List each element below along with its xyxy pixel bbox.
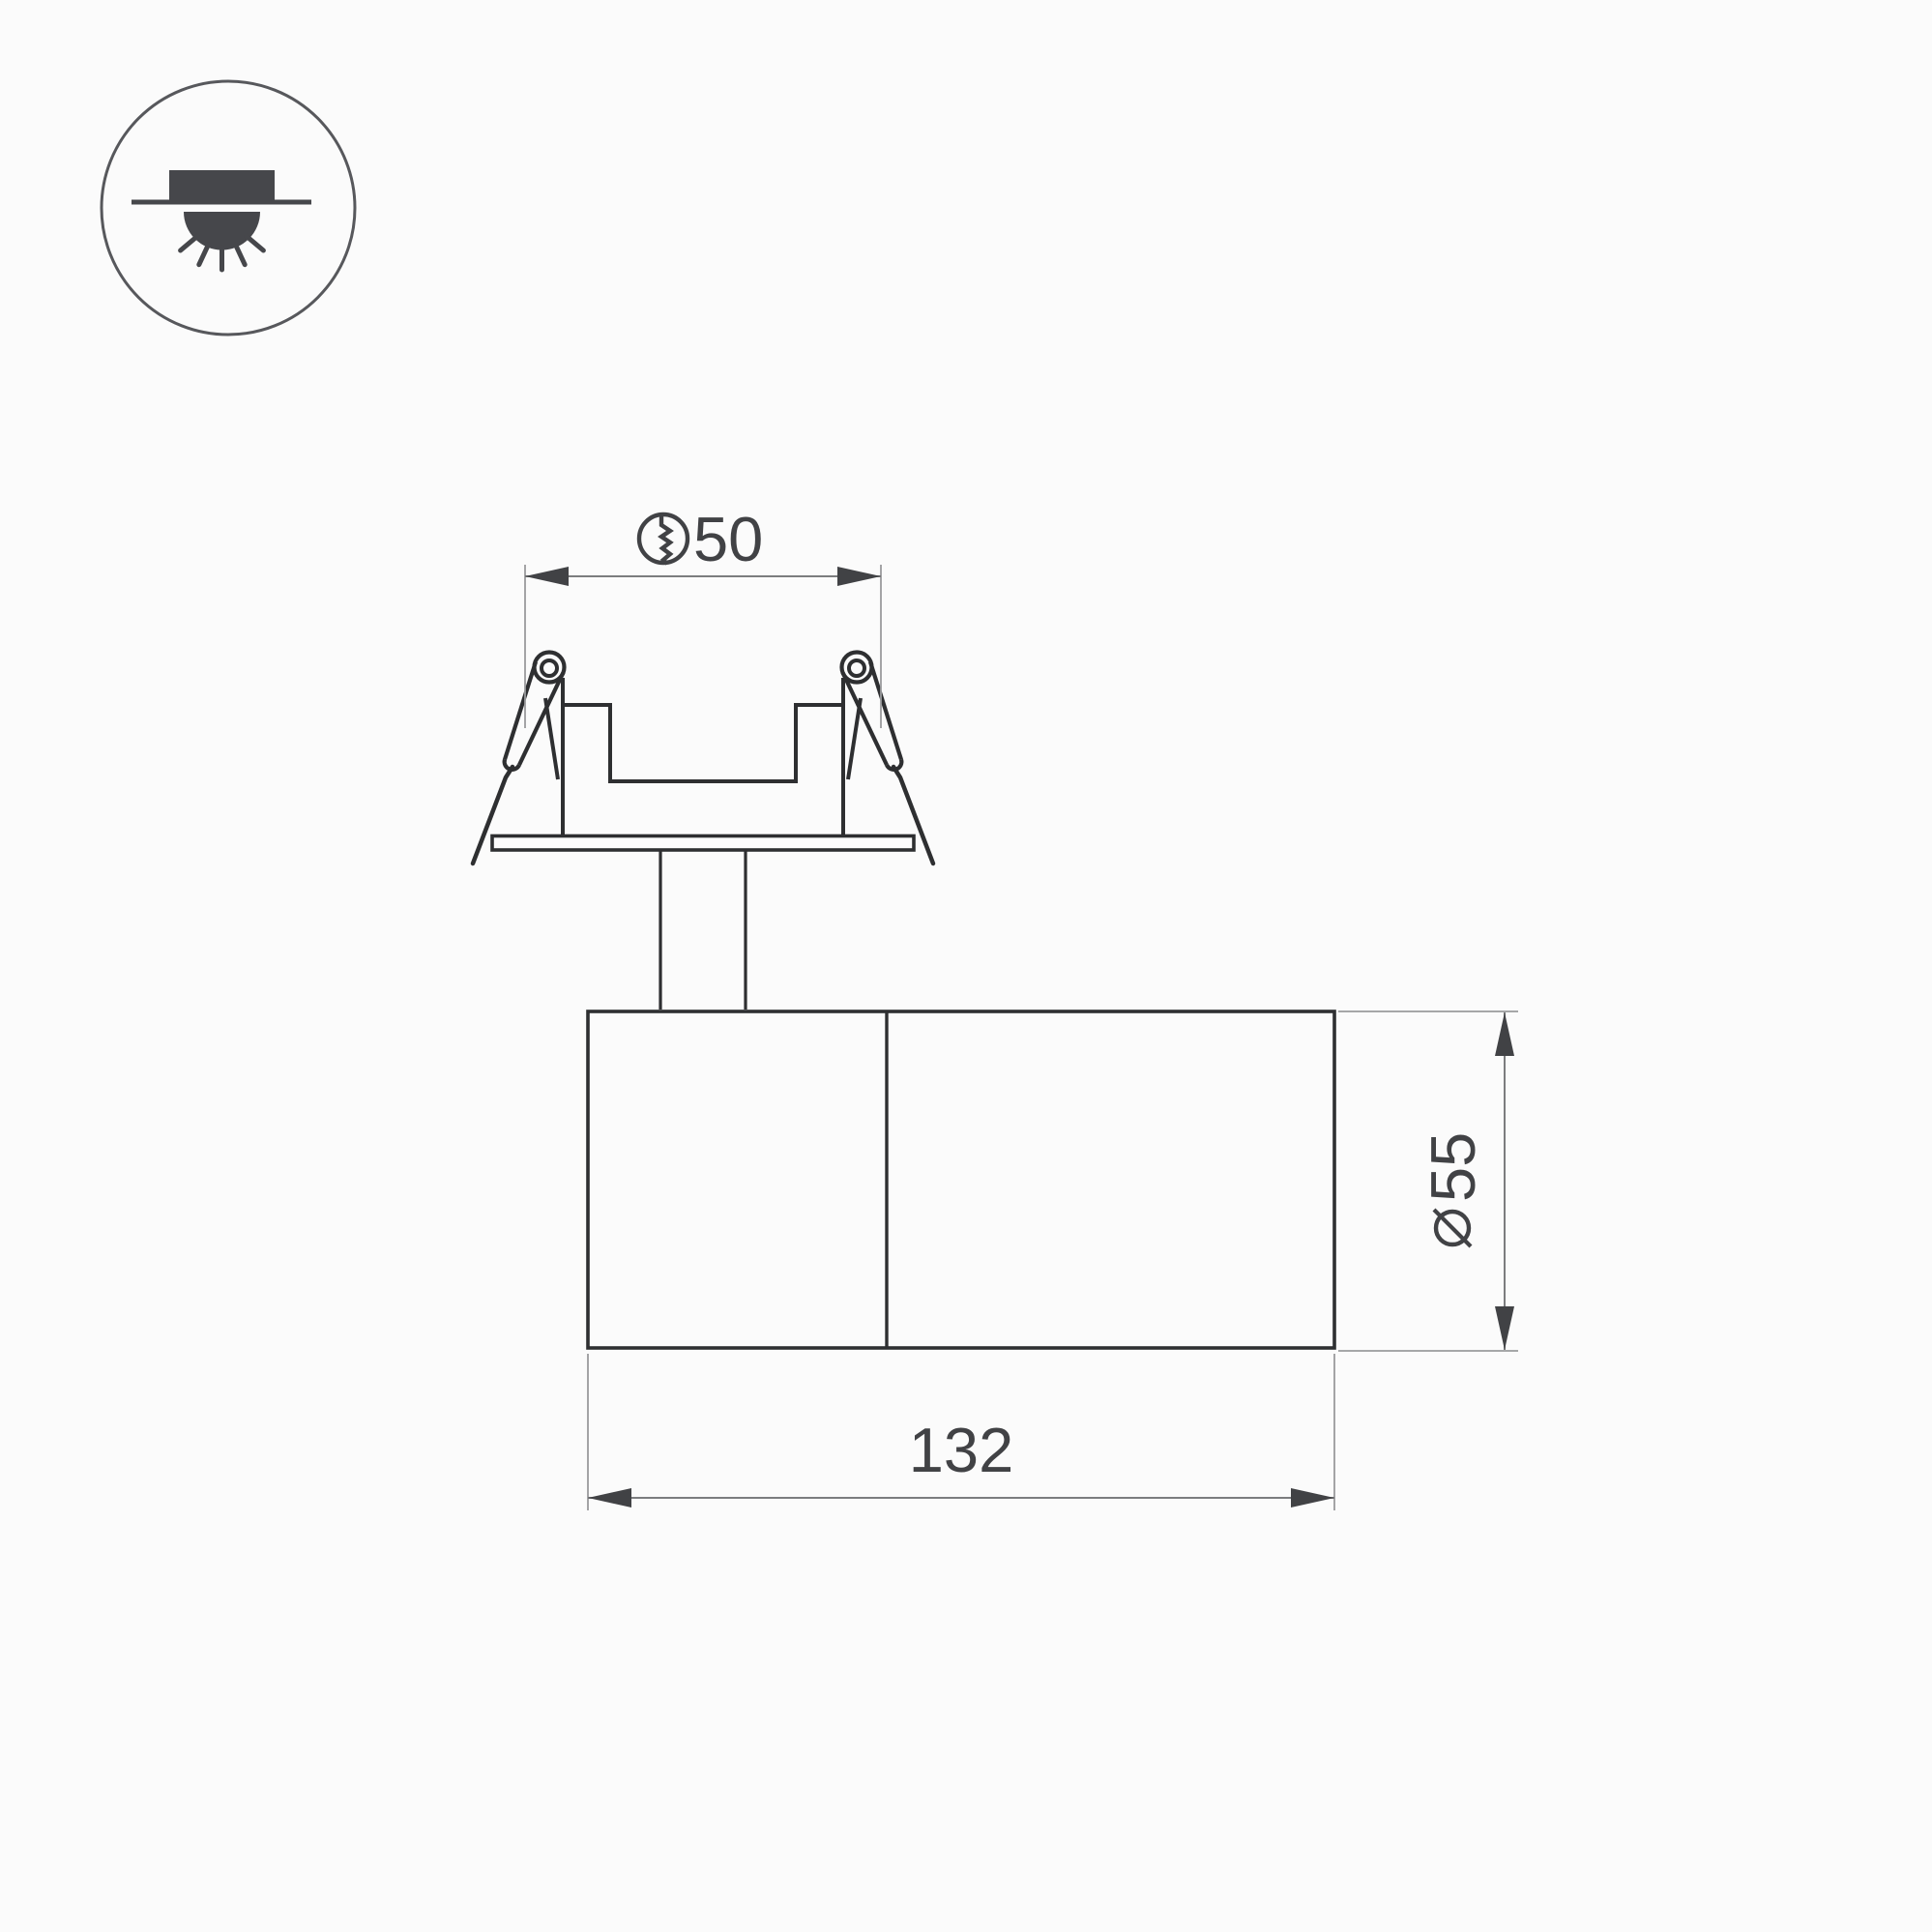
arrow-diameter-top [1495, 1012, 1514, 1056]
drawing-canvas: 50 55 132 [0, 0, 1932, 1932]
clip-spring-leg [545, 698, 558, 779]
icon-lamp-dome [184, 212, 260, 250]
clip-pivot-hole [542, 660, 557, 676]
bracket-flange [492, 836, 914, 851]
cutout-diameter-label: 50 [639, 504, 763, 574]
lamp-body [588, 1011, 1334, 1348]
icon-housing [169, 170, 275, 200]
cutout-diameter-icon [639, 514, 688, 564]
cutout-diameter-value: 50 [693, 504, 763, 574]
clip-arm-inner [505, 662, 536, 760]
recessed-downlight-icon [102, 81, 355, 335]
body-diameter-label: 55 [1418, 1132, 1488, 1246]
arrow-diameter-bottom [1495, 1306, 1514, 1350]
fixture-drawing [473, 653, 1334, 1349]
dimension-arrows [525, 567, 1514, 1508]
arrow-length-right [1291, 1488, 1334, 1508]
arrow-cutout-left [525, 567, 569, 586]
extension-lines [525, 565, 1518, 1510]
dimension-lines [525, 576, 1505, 1498]
bracket-channel [563, 705, 843, 781]
spring-clip-right [842, 653, 934, 864]
arrow-length-left [588, 1488, 631, 1508]
swivel-stem [660, 850, 746, 1010]
cutout-icon-jagged-line [661, 516, 670, 564]
spring-clip-left [473, 653, 565, 864]
dimension-annotations: 50 55 132 [525, 504, 1518, 1510]
body-diameter-value: 55 [1418, 1132, 1488, 1202]
arrow-cutout-right [837, 567, 881, 586]
icon-border-circle [102, 81, 355, 335]
diameter-icon [1434, 1210, 1471, 1246]
overall-length-value: 132 [909, 1415, 1013, 1485]
